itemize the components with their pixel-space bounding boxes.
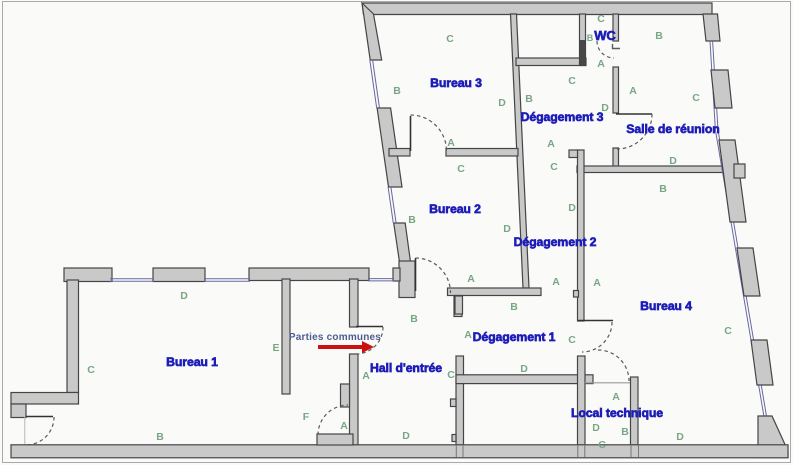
svg-text:D: D [402, 430, 410, 442]
svg-text:C: C [568, 75, 576, 87]
svg-text:D: D [669, 155, 677, 167]
svg-text:C: C [597, 13, 605, 25]
svg-text:E: E [272, 342, 279, 354]
svg-text:Salle de réunion: Salle de réunion [626, 122, 719, 136]
svg-text:B: B [156, 431, 164, 443]
svg-text:C: C [446, 33, 454, 45]
svg-text:A: A [593, 277, 601, 289]
svg-text:C: C [457, 163, 465, 175]
svg-text:B: B [510, 301, 518, 313]
svg-text:C: C [692, 92, 700, 104]
svg-text:D: D [568, 202, 576, 214]
svg-text:Dégagement 3: Dégagement 3 [521, 110, 604, 124]
svg-text:Bureau 2: Bureau 2 [429, 202, 481, 216]
svg-text:C: C [724, 325, 732, 337]
svg-text:B: B [659, 183, 667, 195]
svg-text:A: A [464, 329, 472, 341]
svg-text:D: D [592, 422, 600, 434]
svg-text:B: B [655, 30, 663, 42]
svg-text:Dégagement 1: Dégagement 1 [473, 330, 556, 344]
svg-text:A: A [340, 420, 348, 432]
svg-text:B: B [408, 214, 416, 226]
svg-text:B: B [525, 93, 533, 105]
svg-text:D: D [498, 97, 506, 109]
svg-text:B: B [410, 313, 418, 325]
svg-text:Bureau 3: Bureau 3 [430, 76, 482, 90]
svg-text:D: D [503, 223, 511, 235]
svg-text:A: A [597, 58, 605, 70]
svg-text:D: D [520, 363, 528, 375]
svg-text:A: A [547, 138, 555, 150]
svg-text:C: C [598, 439, 606, 451]
svg-text:D: D [180, 290, 188, 302]
svg-text:F: F [303, 411, 310, 423]
svg-text:Parties communes: Parties communes [289, 332, 381, 343]
svg-text:Hall d'entrée: Hall d'entrée [370, 361, 442, 375]
svg-text:A: A [447, 137, 455, 149]
svg-text:B: B [393, 85, 401, 97]
svg-text:C: C [550, 161, 558, 173]
svg-text:Bureau 1: Bureau 1 [166, 355, 218, 369]
svg-text:B: B [621, 426, 629, 438]
svg-text:Bureau 4: Bureau 4 [640, 299, 692, 313]
svg-text:WC: WC [594, 28, 616, 43]
svg-text:A: A [362, 370, 370, 382]
svg-text:A: A [612, 391, 620, 403]
svg-text:D: D [601, 102, 609, 114]
svg-text:Dégagement 2: Dégagement 2 [514, 235, 597, 249]
svg-text:C: C [447, 369, 455, 381]
svg-text:A: A [467, 273, 475, 285]
svg-text:C: C [568, 334, 576, 346]
svg-text:B: B [587, 33, 594, 43]
svg-text:Local technique: Local technique [571, 406, 663, 420]
svg-text:A: A [552, 276, 560, 288]
svg-text:C: C [87, 364, 95, 376]
svg-text:D: D [676, 431, 684, 443]
svg-text:A: A [629, 85, 637, 97]
